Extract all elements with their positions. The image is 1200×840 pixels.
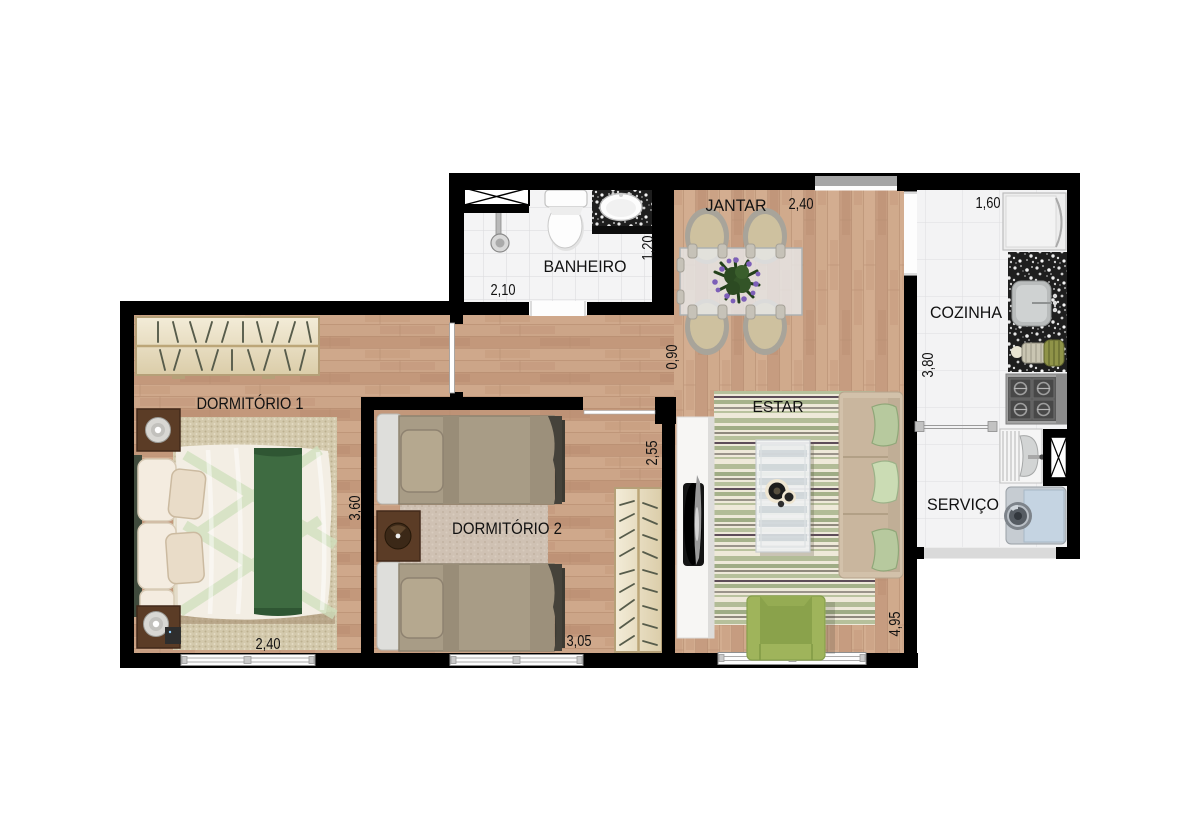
svg-text:2,10: 2,10 [491,282,516,299]
svg-text:BANHEIRO: BANHEIRO [544,257,627,276]
svg-text:JANTAR: JANTAR [706,196,767,215]
svg-text:3,80: 3,80 [920,352,937,377]
svg-text:ESTAR: ESTAR [753,399,804,416]
svg-text:3,60: 3,60 [347,495,364,520]
svg-text:DORMITÓRIO 2: DORMITÓRIO 2 [452,519,562,538]
svg-text:2,40: 2,40 [256,636,281,653]
svg-text:2,40: 2,40 [789,196,814,213]
svg-text:DORMITÓRIO 1: DORMITÓRIO 1 [197,394,304,413]
svg-text:1,60: 1,60 [976,195,1001,212]
svg-text:1,20: 1,20 [640,235,657,260]
svg-text:COZINHA: COZINHA [930,303,1003,322]
svg-text:2,55: 2,55 [644,441,661,466]
svg-text:SERVIÇO: SERVIÇO [927,495,999,514]
svg-text:4,95: 4,95 [887,612,904,637]
svg-text:0,90: 0,90 [664,344,681,369]
svg-text:3,05: 3,05 [567,633,592,650]
